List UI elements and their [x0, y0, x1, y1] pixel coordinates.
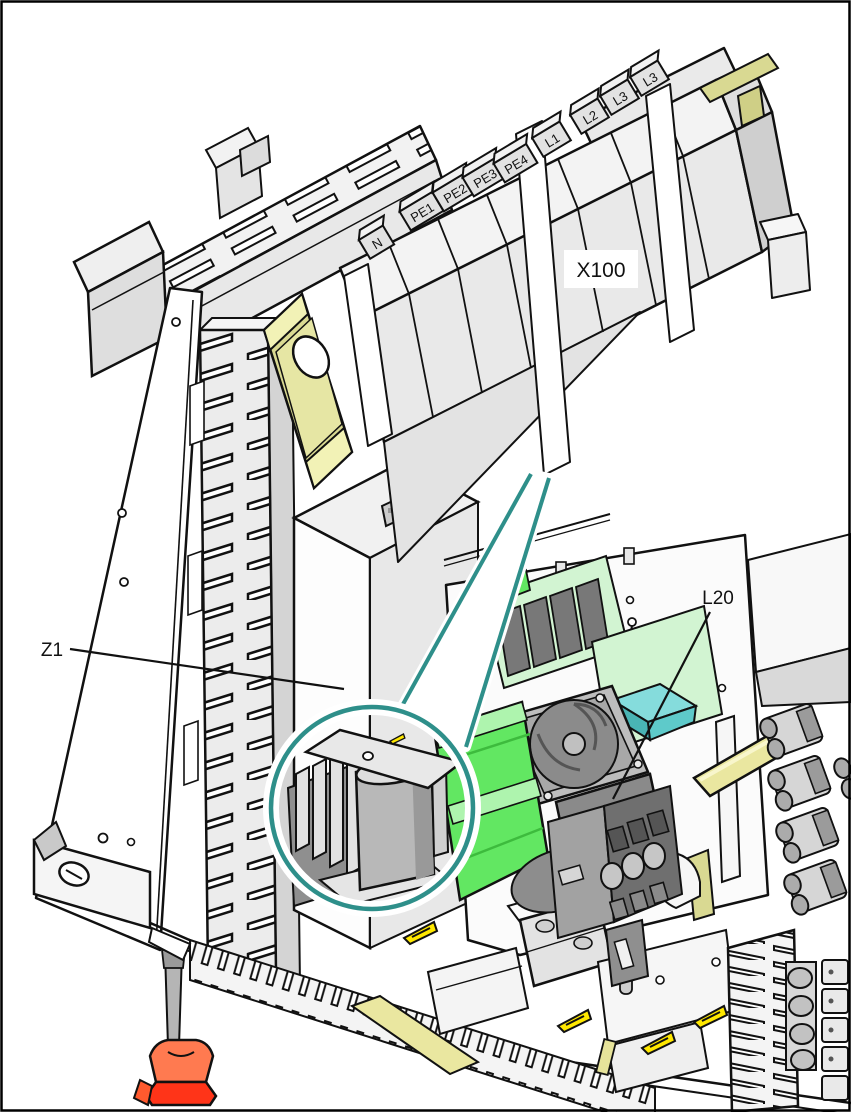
panel-hole: [118, 509, 126, 517]
end-knob: [768, 232, 810, 298]
svg-text:X100: X100: [576, 259, 625, 282]
heatsink-vent-column: [200, 318, 300, 986]
plate-tab: [624, 548, 634, 564]
illustration-page: Z1 L20 N PE1 PE2: [0, 0, 851, 1112]
terminal-screw: [601, 863, 623, 889]
terminal-screw: [643, 843, 665, 869]
choke-fin: [330, 752, 343, 867]
terminal-screw: [622, 853, 644, 879]
panel-hole: [172, 318, 180, 326]
bottom-plate-left: [428, 948, 528, 1034]
keyhole: [628, 618, 636, 626]
screw-hole: [627, 597, 634, 604]
choke-fin: [296, 767, 309, 851]
panel-hole: [99, 834, 108, 843]
z1-label: Z1: [41, 640, 63, 661]
l20-label: L20: [702, 588, 734, 609]
screwdriver-handle-fin: [134, 1080, 152, 1105]
x100-label: X100: [564, 250, 638, 288]
screwdriver-handle: [146, 1082, 216, 1105]
screw-hole: [719, 685, 726, 692]
mounting-box-rear: [206, 128, 270, 218]
choke-fin: [313, 759, 326, 859]
fan-hub: [563, 733, 585, 755]
screw-terminal-stack: [758, 702, 851, 917]
mounting-box-left: [74, 222, 167, 376]
exploded-view-figure: Z1 L20 N PE1 PE2: [0, 0, 851, 1112]
warning-triangle-icon: [558, 1010, 591, 1032]
terminal-block-x100: [340, 48, 810, 562]
panel-hole: [120, 578, 128, 586]
screwdriver-handle-top: [150, 1040, 213, 1082]
